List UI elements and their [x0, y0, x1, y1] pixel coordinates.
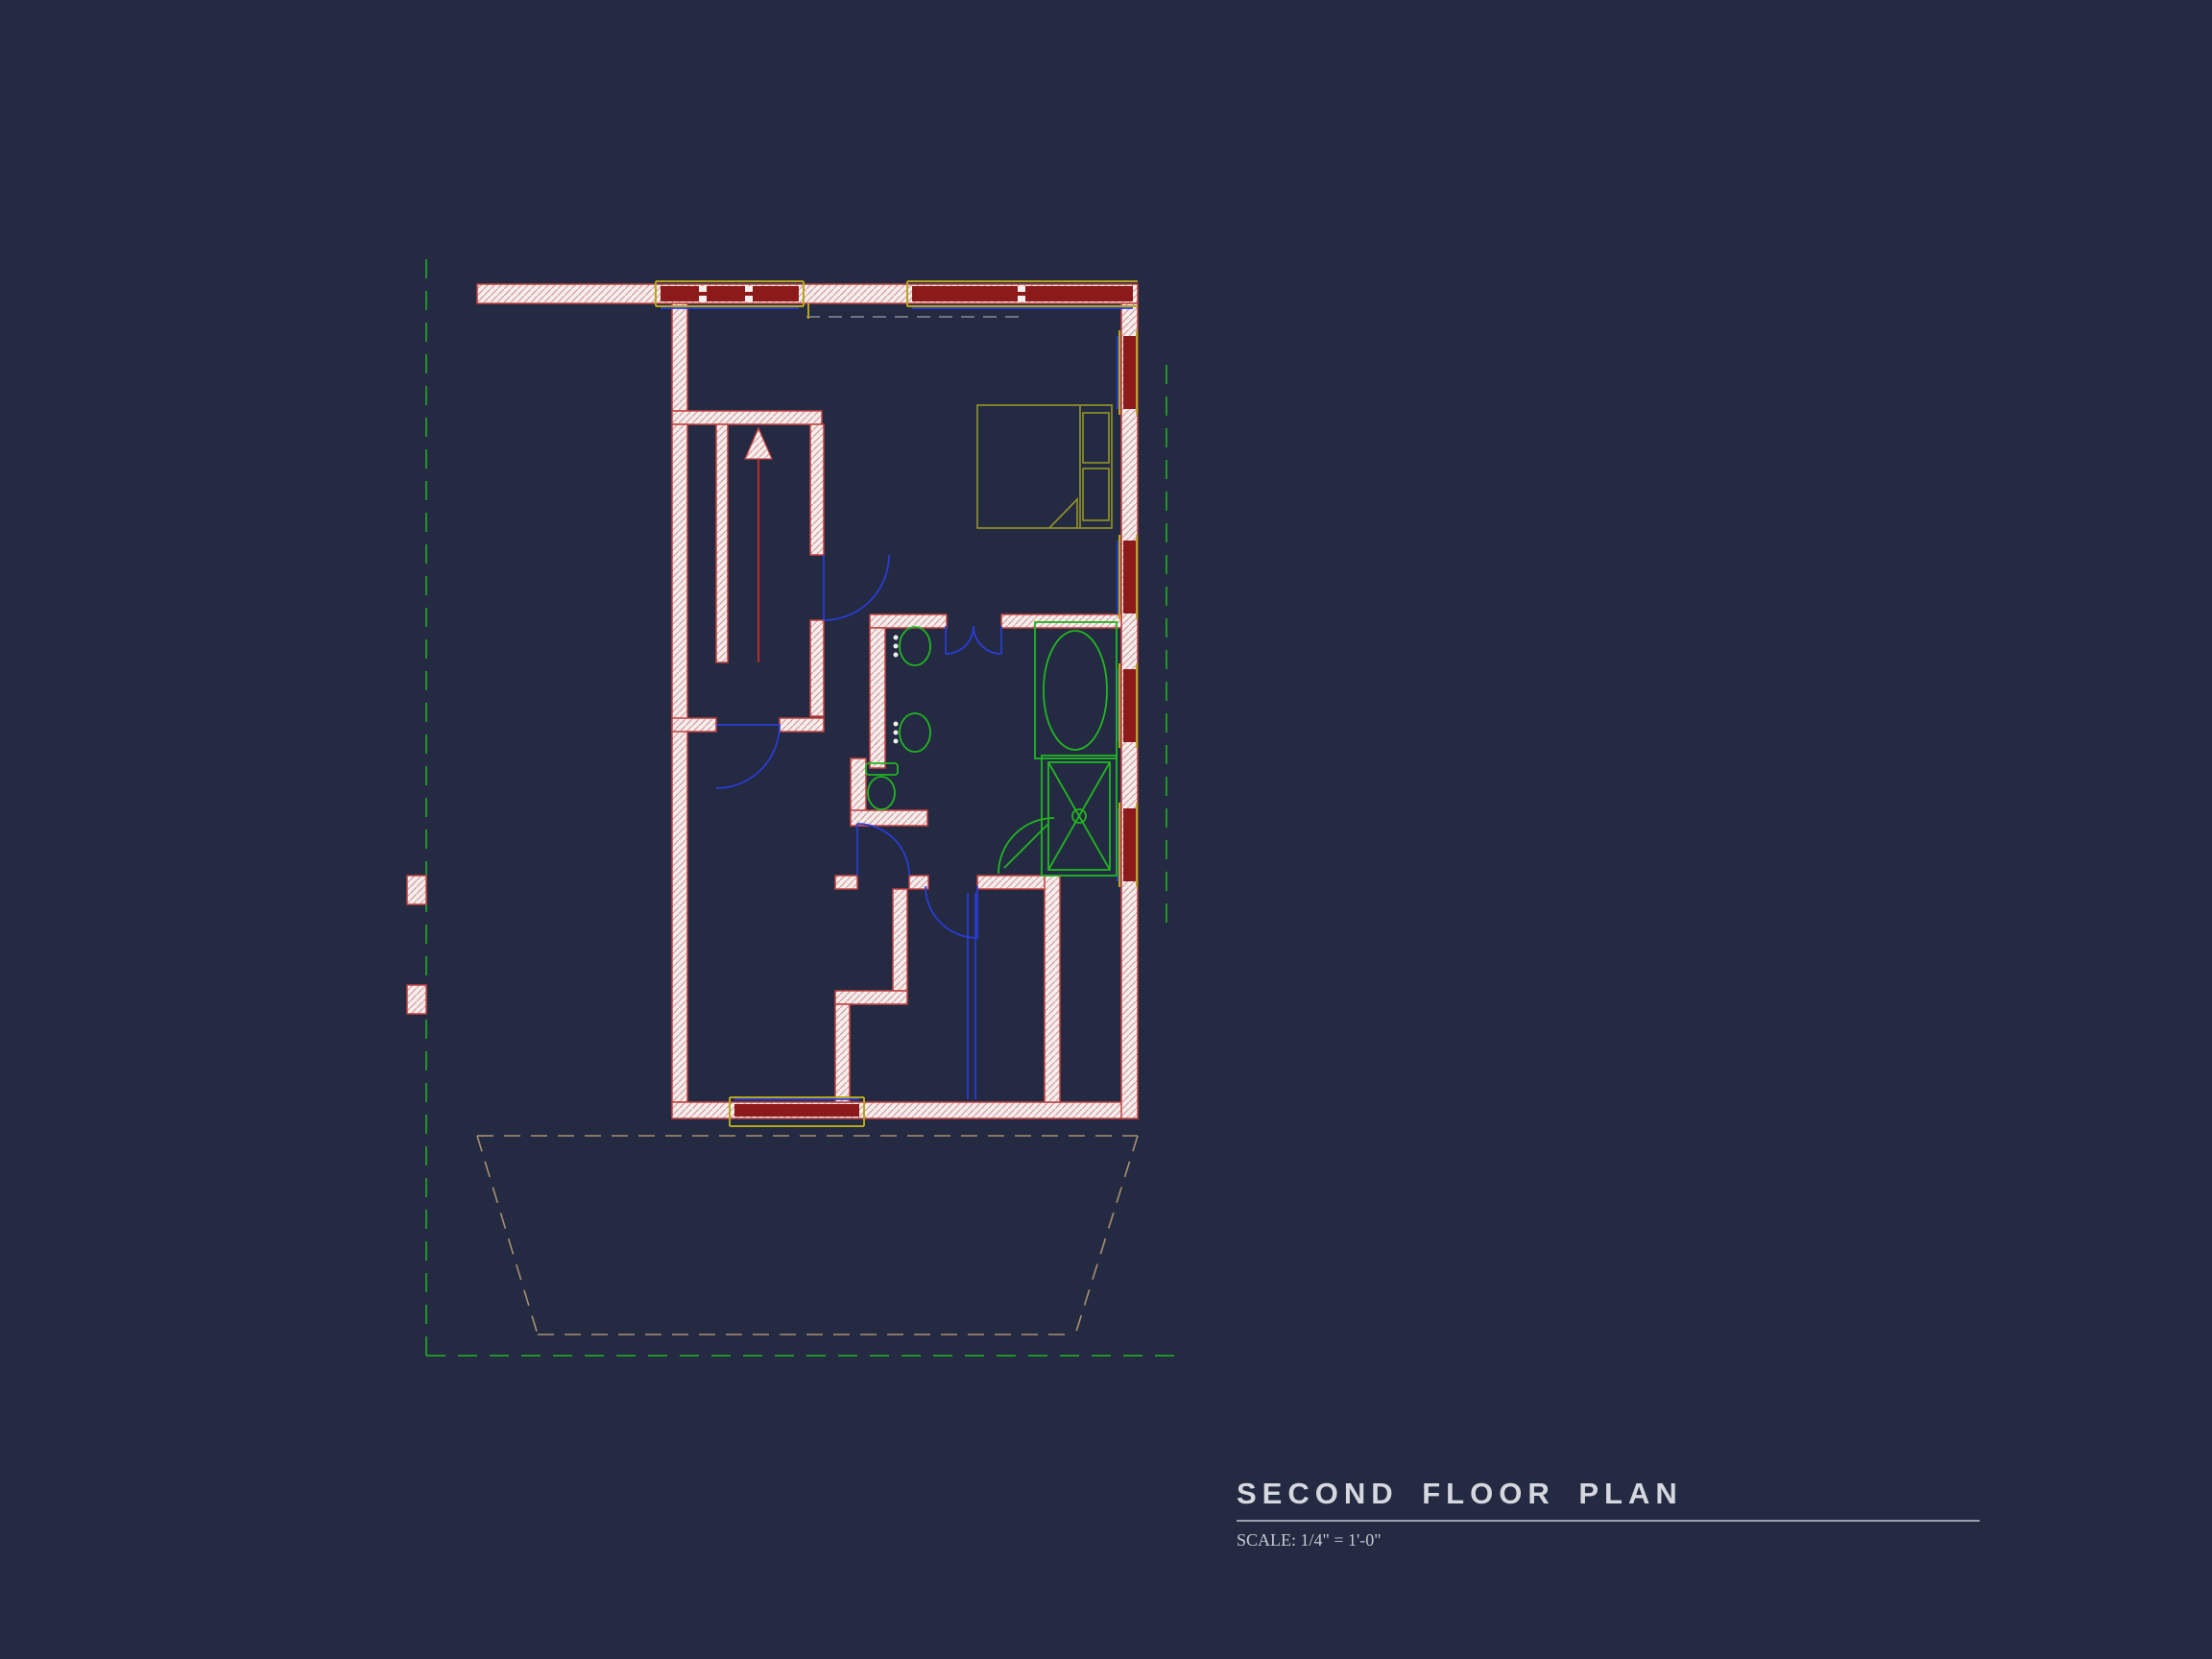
sink-icon	[900, 713, 930, 752]
blueprint-page: SECOND FLOOR PLAN SCALE: 1/4" = 1'-0"	[0, 0, 2212, 1659]
stair-arrow-icon	[745, 428, 772, 459]
sink-icon	[900, 627, 930, 665]
shower-icon	[998, 756, 1117, 876]
fixtures-group	[866, 405, 1117, 876]
stairs-group	[745, 428, 772, 662]
walls-group	[407, 284, 1138, 1118]
bed-icon	[977, 405, 1112, 528]
scale-label: SCALE: 1/4" = 1'-0"	[1237, 1530, 1980, 1551]
toilet-icon	[866, 763, 898, 809]
bathtub-icon	[1035, 622, 1117, 758]
page-title: SECOND FLOOR PLAN	[1237, 1477, 1980, 1511]
title-block: SECOND FLOOR PLAN SCALE: 1/4" = 1'-0"	[1237, 1477, 1980, 1551]
title-underline	[1237, 1520, 1980, 1522]
floorplan-canvas	[0, 0, 2212, 1659]
